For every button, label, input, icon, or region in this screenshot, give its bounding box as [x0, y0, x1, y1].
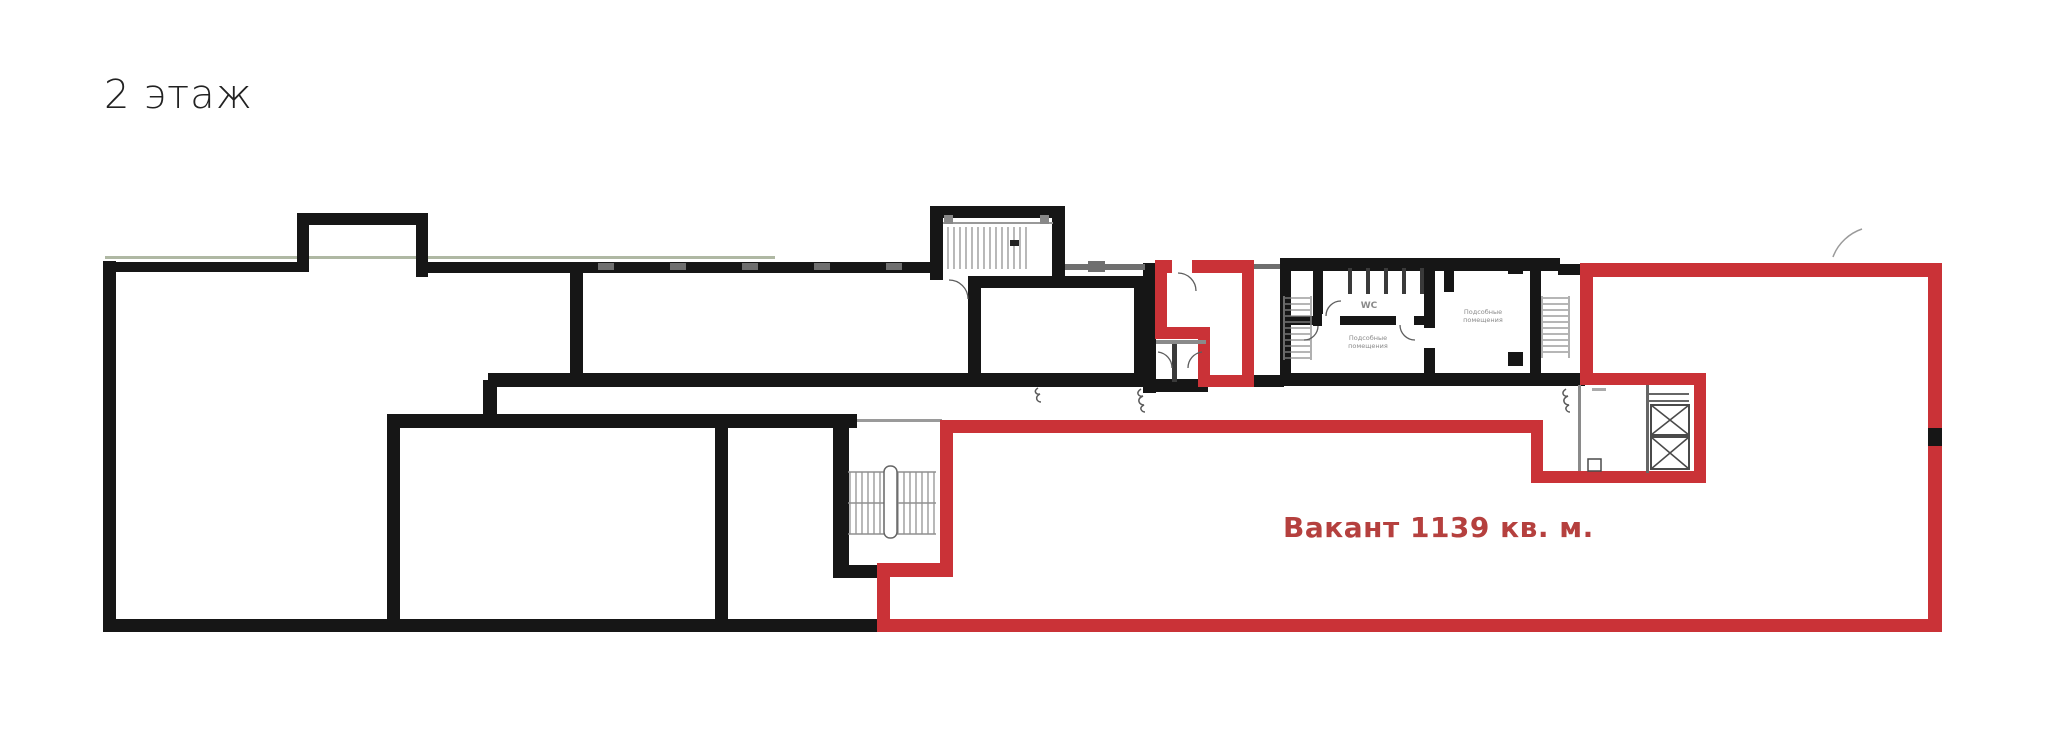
utility-block [1280, 258, 1585, 386]
upper-stairwell [930, 206, 1065, 280]
utility-room-label-1: Подсобные помещения [1337, 335, 1399, 350]
floor-plan-drawing [0, 0, 2048, 740]
floor-plan-page: 2 этаж Вакант 1139 кв. м. WC Подсобные п… [0, 0, 2048, 740]
utility-room-label-2: Подсобные помещения [1452, 309, 1514, 324]
floor-title: 2 этаж [104, 72, 253, 118]
central-stairs [848, 466, 936, 538]
toilet-partitions [1348, 268, 1424, 294]
upper-room-walls [968, 276, 1147, 385]
green-boundary-line [105, 256, 775, 259]
vacant-area-label: Вакант 1139 кв. м. [1283, 511, 1594, 544]
elevator-room [1578, 385, 1689, 473]
utility-right-stairs [1542, 296, 1569, 358]
small-red-room-outline [1155, 258, 1254, 387]
wc-room-label: WC [1345, 301, 1393, 312]
